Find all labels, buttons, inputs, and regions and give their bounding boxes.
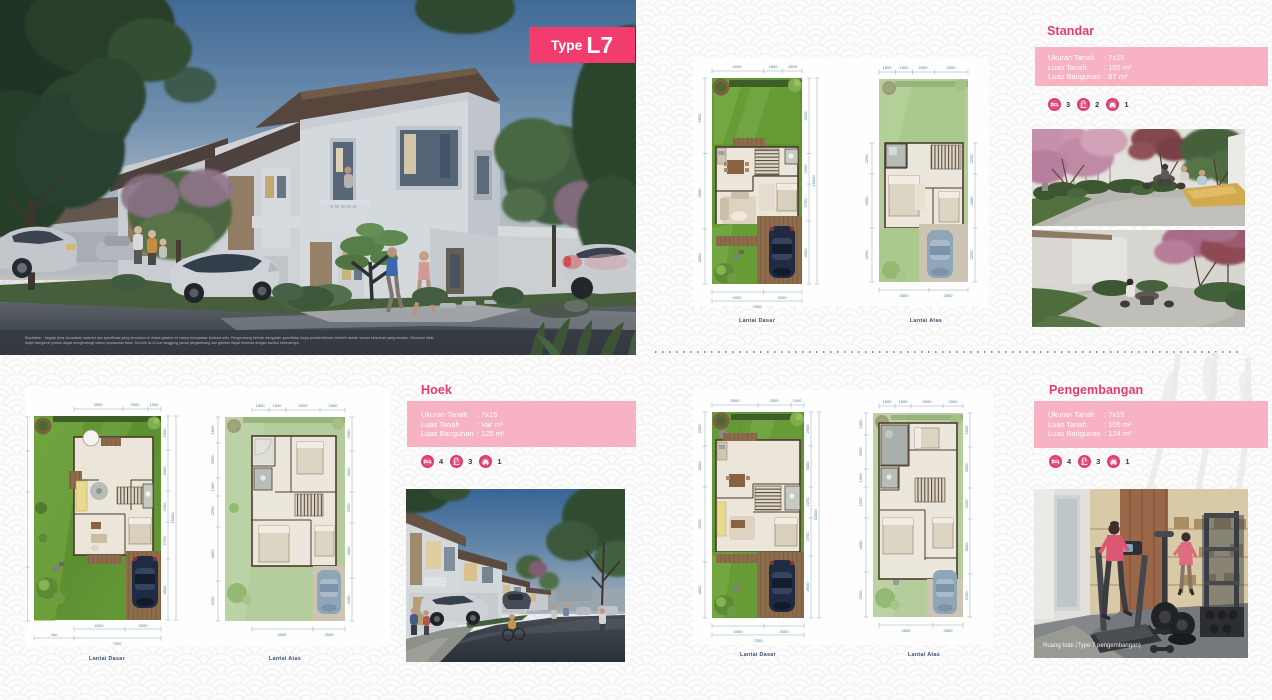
- svg-text:4000: 4000: [697, 585, 702, 595]
- svg-text:3000: 3000: [697, 461, 702, 471]
- svg-text:7000: 7000: [753, 304, 763, 309]
- svg-text:2500: 2500: [210, 455, 215, 465]
- svg-text:Lantai Atas: Lantai Atas: [910, 318, 942, 324]
- svg-text:7000: 7000: [113, 641, 123, 646]
- svg-text:3000: 3000: [778, 295, 788, 300]
- svg-text:Lantai Dasar: Lantai Dasar: [89, 656, 126, 662]
- svg-text:4000: 4000: [964, 542, 969, 552]
- svg-text:2500: 2500: [858, 447, 863, 457]
- svg-text:1000: 1000: [150, 402, 160, 407]
- svg-text:1500: 1500: [273, 403, 283, 408]
- svg-text:2250: 2250: [964, 499, 969, 509]
- svg-text:4000: 4000: [858, 540, 863, 550]
- svg-text:2500: 2500: [770, 398, 780, 403]
- svg-text:3000: 3000: [947, 65, 957, 70]
- svg-text:3250: 3250: [969, 250, 974, 260]
- svg-text:2750: 2750: [162, 536, 167, 546]
- svg-text:3900: 3900: [964, 463, 969, 473]
- svg-text:1350: 1350: [858, 473, 863, 483]
- svg-text:Lantai Dasar: Lantai Dasar: [739, 318, 776, 324]
- svg-text:1500: 1500: [256, 403, 266, 408]
- svg-text:1500: 1500: [769, 64, 779, 69]
- svg-text:3000: 3000: [346, 467, 351, 477]
- svg-text:Lantai Atas: Lantai Atas: [269, 656, 301, 662]
- svg-text:2500: 2500: [131, 402, 141, 407]
- svg-text:3900: 3900: [94, 402, 104, 407]
- svg-text:16000: 16000: [811, 175, 816, 187]
- svg-text:1950: 1950: [210, 425, 215, 435]
- svg-text:3250: 3250: [858, 590, 863, 600]
- svg-text:4000: 4000: [95, 623, 105, 628]
- svg-text:3000: 3000: [139, 623, 149, 628]
- svg-text:4000: 4000: [346, 546, 351, 556]
- svg-text:1500: 1500: [788, 64, 798, 69]
- svg-text:4000: 4000: [733, 64, 743, 69]
- svg-text:2500: 2500: [964, 425, 969, 435]
- svg-text:2500: 2500: [944, 628, 954, 633]
- svg-text:1000: 1000: [793, 398, 803, 403]
- svg-text:2250: 2250: [803, 164, 808, 174]
- svg-text:1350: 1350: [210, 482, 215, 492]
- svg-text:1500: 1500: [883, 65, 893, 70]
- svg-text:3250: 3250: [210, 596, 215, 606]
- svg-text:2750: 2750: [805, 532, 810, 542]
- svg-text:2750: 2750: [803, 198, 808, 208]
- svg-text:1500: 1500: [900, 65, 910, 70]
- svg-text:2500: 2500: [805, 424, 810, 434]
- svg-text:2500: 2500: [697, 424, 702, 434]
- svg-text:Lantai Atas: Lantai Atas: [908, 652, 940, 658]
- svg-text:7000: 7000: [754, 638, 764, 643]
- svg-text:2250: 2250: [162, 502, 167, 512]
- svg-text:4000: 4000: [734, 629, 744, 634]
- svg-text:4900: 4900: [803, 248, 808, 258]
- svg-text:2500: 2500: [944, 293, 954, 298]
- svg-text:5500: 5500: [697, 113, 702, 123]
- svg-text:5500: 5500: [697, 188, 702, 198]
- svg-text:Lantai Dasar: Lantai Dasar: [740, 652, 777, 658]
- svg-text:4000: 4000: [733, 295, 743, 300]
- svg-text:1650: 1650: [858, 419, 863, 429]
- svg-text:1500: 1500: [883, 399, 893, 404]
- svg-text:15000: 15000: [170, 512, 175, 524]
- svg-text:2000: 2000: [949, 399, 959, 404]
- svg-text:4000: 4000: [210, 549, 215, 559]
- svg-text:3000: 3000: [923, 399, 933, 404]
- svg-text:4500: 4500: [278, 632, 288, 637]
- svg-text:5500: 5500: [697, 519, 702, 529]
- svg-text:3000: 3000: [805, 461, 810, 471]
- svg-text:4500: 4500: [902, 628, 912, 633]
- svg-text:3250: 3250: [346, 595, 351, 605]
- svg-text:2250: 2250: [805, 497, 810, 507]
- svg-text:3000: 3000: [780, 629, 790, 634]
- svg-text:4000: 4000: [697, 253, 702, 263]
- svg-text:2000: 2000: [329, 403, 339, 408]
- svg-text:4900: 4900: [162, 585, 167, 595]
- svg-text:4500: 4500: [900, 293, 910, 298]
- svg-text:2250: 2250: [969, 154, 974, 164]
- svg-text:2500: 2500: [325, 632, 335, 637]
- svg-text:Ruang hobi (Type 7 pengembanga: Ruang hobi (Type 7 pengembangan): [1043, 643, 1141, 649]
- svg-text:2500: 2500: [346, 429, 351, 439]
- svg-text:4000: 4000: [969, 196, 974, 206]
- svg-text:2250: 2250: [210, 506, 215, 516]
- svg-text:2500: 2500: [162, 428, 167, 438]
- svg-text:2250: 2250: [858, 497, 863, 507]
- svg-text:5500: 5500: [803, 111, 808, 121]
- svg-text:1500: 1500: [899, 399, 909, 404]
- svg-text:2250: 2250: [346, 503, 351, 513]
- svg-text:3250: 3250: [964, 591, 969, 601]
- svg-text:3000: 3000: [162, 466, 167, 476]
- svg-text:2000: 2000: [919, 65, 929, 70]
- svg-text:3500: 3500: [731, 398, 741, 403]
- svg-text:3000: 3000: [299, 403, 309, 408]
- svg-text:Var: Var: [51, 632, 58, 637]
- svg-text:15000: 15000: [813, 509, 818, 521]
- svg-text:4500: 4500: [805, 582, 810, 592]
- svg-text:3250: 3250: [864, 250, 869, 260]
- svg-text:2250: 2250: [864, 154, 869, 164]
- svg-text:4000: 4000: [864, 196, 869, 206]
